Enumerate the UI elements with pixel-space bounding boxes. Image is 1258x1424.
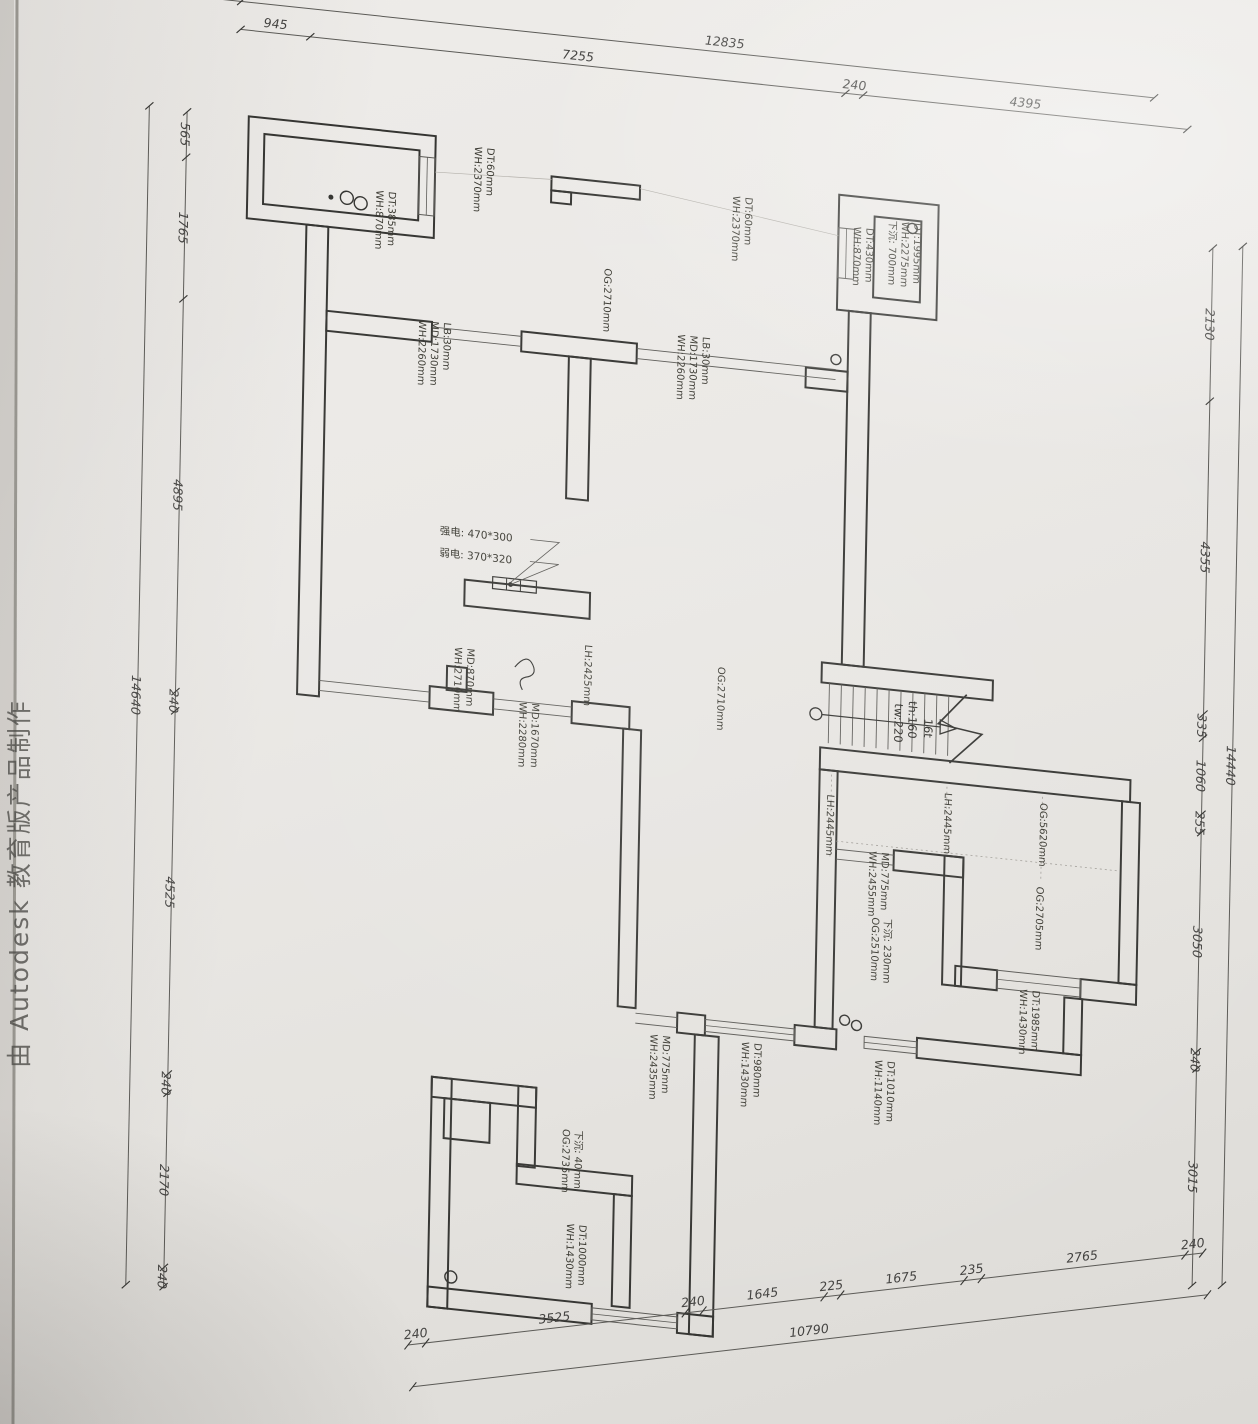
dimension-value: 7255 <box>562 46 594 64</box>
annotation-a11: WH:2280mm <box>515 701 527 768</box>
fixture-circle <box>851 1020 861 1031</box>
wall <box>572 701 630 729</box>
annotation-a7: MD:1730mm <box>427 321 439 387</box>
wall <box>427 1077 451 1309</box>
wall <box>677 1013 705 1036</box>
dimension-value: 240 <box>842 76 866 93</box>
stair-tread <box>828 683 829 743</box>
stair-tread <box>852 686 853 746</box>
wall <box>297 225 328 697</box>
annotation-a9: WH:2710mm <box>451 646 463 713</box>
annotation-a2: WH:2370mm <box>471 146 483 213</box>
annotation-a17: WH:2455mm <box>865 850 877 917</box>
dimension-value: 14440 <box>1223 745 1239 786</box>
annotation-a22: DT:980mm <box>750 1042 762 1098</box>
stair-tread <box>840 684 841 744</box>
annotation-a15: OG:5620mm <box>1036 802 1048 867</box>
bottom-dimensions: 240352524016452251675235276524010790 <box>402 1235 1212 1391</box>
dimension-value: 1060 <box>1193 759 1209 792</box>
dimension-value: 235 <box>959 1260 984 1278</box>
annotation-a14: LH:2445mm <box>941 792 953 854</box>
annotation-a8: WH:2260mm <box>674 334 686 401</box>
annotation-a17: MD:775mm <box>878 852 890 911</box>
dimension-value: 240 <box>166 688 181 713</box>
annotation-a5: 下沉: 700mm <box>885 220 899 286</box>
wall <box>917 1038 1081 1075</box>
wall <box>1080 979 1136 1005</box>
dimension-value: 225 <box>818 1277 843 1295</box>
wall <box>794 1025 836 1049</box>
dimension-value: 565 <box>177 122 192 147</box>
fixture-dot <box>328 194 333 200</box>
annotation-a21: WH:2435mm <box>646 1033 658 1100</box>
wall <box>820 747 1131 802</box>
fixture-circle <box>340 191 353 205</box>
stair-tread-width-label: tw:220 <box>891 703 906 744</box>
wall <box>689 1034 719 1336</box>
annotation-a23: OG:2735mm <box>559 1128 571 1193</box>
dimension-value: 2765 <box>1065 1247 1098 1266</box>
fixture-circle <box>445 1270 457 1283</box>
dimension-value: 1765 <box>176 211 192 244</box>
dimension-value: 1645 <box>746 1284 779 1303</box>
autocad-educational-watermark: 由 Autodesk 教育版产品制作 <box>0 308 36 1068</box>
annotation-a3: WH:2370mm <box>729 195 741 262</box>
wall <box>842 311 871 667</box>
wall <box>1118 801 1140 985</box>
annotation-a7: WH:2260mm <box>415 319 427 386</box>
wall <box>612 1194 632 1308</box>
annotation-a24: DT:1000mm <box>575 1224 587 1286</box>
annotation-a21: MD:775mm <box>659 1035 671 1094</box>
annotation-a19: WH:1430mm <box>1016 988 1028 1055</box>
wall <box>551 190 571 204</box>
stair-tread <box>888 690 889 750</box>
annotation-a18: 下沉: 230mm <box>880 918 894 984</box>
dimension-value: 10790 <box>788 1321 829 1340</box>
annotation-a13: LH:2445mm <box>823 794 835 856</box>
annotation-a8: LB:30mm <box>699 336 711 385</box>
dimension-value: 1675 <box>885 1268 918 1287</box>
annotation-a7: LB:30mm <box>440 322 452 371</box>
dimension-value: 240 <box>158 1071 173 1096</box>
dimension-value: 4395 <box>1009 94 1041 112</box>
fixture-circle <box>831 354 841 365</box>
annotation-a22: WH:1430mm <box>738 1041 750 1108</box>
stair-riser-label: th:160 <box>905 700 920 739</box>
annotation-a23: 下沉: 40mm <box>571 1130 585 1190</box>
annotation-a9: MD:870mm <box>463 648 475 707</box>
annotation-a2: DT:60mm <box>483 147 495 196</box>
annotation-a6: WH:870mm <box>850 226 862 286</box>
dimension-value: 2130 <box>1202 308 1218 341</box>
annotation-a18: OG:2510mm <box>868 917 880 982</box>
annotation-a3: DT:60mm <box>742 197 754 246</box>
dimension-value: 4895 <box>170 478 186 511</box>
stair-start-circle <box>810 707 822 720</box>
wall <box>517 1086 537 1168</box>
dimension-value: 3525 <box>538 1308 571 1327</box>
stair-count-label: 16t <box>921 718 935 739</box>
wall <box>521 331 637 363</box>
annotation-a4: OG:2710mm <box>600 268 612 333</box>
dimension-value: 14640 <box>128 674 144 715</box>
wall <box>893 850 963 877</box>
fixture-circle <box>354 196 367 210</box>
dimension-value: 4525 <box>162 876 178 909</box>
wall <box>464 580 590 619</box>
wall <box>805 367 847 391</box>
annotation-a5: DT:1995mm <box>910 222 922 284</box>
fixture-circle <box>840 1015 850 1026</box>
stair-tread <box>864 687 865 747</box>
annotation-a10: LH:2425mm <box>581 644 593 706</box>
wall <box>618 729 641 1009</box>
stair-break-line <box>938 692 983 767</box>
dimension-value: 4355 <box>1197 541 1213 574</box>
dimension-value: 240 <box>155 1264 170 1289</box>
annotation-a11: MD:1670mm <box>528 703 540 769</box>
dimension-value: 3015 <box>1185 1160 1201 1193</box>
stair-tread <box>876 688 877 748</box>
wall <box>566 356 591 500</box>
annotation-a12: OG:2710mm <box>714 666 726 731</box>
dimension-value: 240 <box>1187 1047 1202 1072</box>
plan-content: tw:220th:16016t强电: 470*300弱电: 370*320DT:… <box>117 0 1252 1405</box>
annotation-a1: DT:385mm <box>385 191 397 247</box>
dimension-value: 945 <box>264 15 288 32</box>
dimension-value: 240 <box>680 1293 705 1311</box>
annotation-a5: WH:2275mm <box>898 221 910 288</box>
annotation-a20: WH:1140mm <box>871 1059 883 1126</box>
door-swing-squiggle <box>514 658 534 691</box>
annotation-a20: DT:1010mm <box>883 1060 895 1122</box>
annotation-a24: WH:1430mm <box>563 1223 575 1290</box>
dimension-value: 240 <box>403 1325 428 1343</box>
annotation-a1: WH:870mm <box>372 190 384 250</box>
strong-electric-label: 强电: 470*300 <box>440 524 513 545</box>
photo-of-floor-plan: tw:220th:16016t强电: 470*300弱电: 370*320DT:… <box>0 0 1258 1424</box>
dimension-value: 2170 <box>156 1164 172 1197</box>
dimension-value: 12835 <box>705 32 745 51</box>
wall <box>1063 997 1082 1055</box>
annotation-a16: OG:2705mm <box>1032 886 1044 951</box>
annotation-a19: DT:1985mm <box>1028 990 1040 1052</box>
dimension-value: 240 <box>1180 1235 1205 1253</box>
dimension-value: 255 <box>1192 811 1207 836</box>
annotation-a8: MD:1730mm <box>686 335 698 401</box>
weak-electric-label: 弱电: 370*320 <box>439 546 512 567</box>
wall <box>551 176 640 199</box>
floor-plan-drawing: tw:220th:16016t强电: 470*300弱电: 370*320DT:… <box>0 0 1258 1424</box>
wall <box>821 662 992 700</box>
dimension-value: 3050 <box>1190 925 1206 958</box>
annotation-a6: DT:430mm <box>862 227 874 283</box>
